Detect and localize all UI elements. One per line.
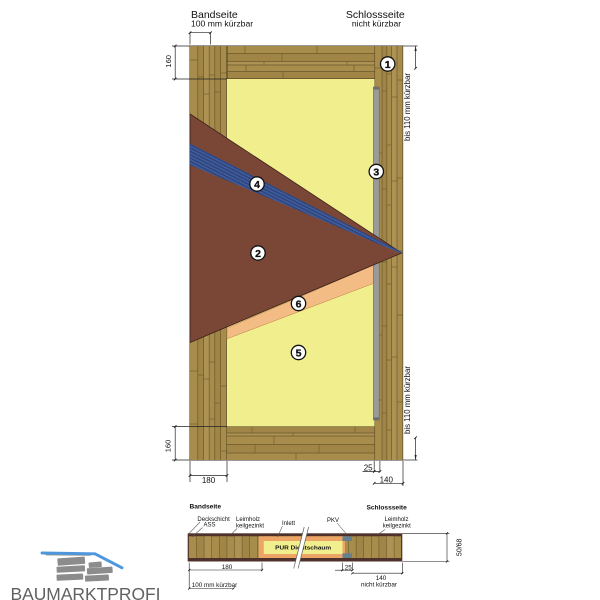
svg-text:BAUMARKTPROFI: BAUMARKTPROFI [11,584,161,600]
svg-text:4: 4 [254,179,260,191]
svg-text:1: 1 [385,59,391,71]
svg-text:100 mm kürzbar: 100 mm kürzbar [192,582,238,589]
svg-text:bis 110 mm kürzbar: bis 110 mm kürzbar [403,366,412,434]
svg-text:25: 25 [345,564,353,571]
svg-text:2: 2 [255,248,261,260]
svg-text:Schlossseite: Schlossseite [366,505,407,512]
svg-text:6: 6 [296,298,302,310]
svg-text:keilgezinkt: keilgezinkt [236,523,264,529]
svg-text:180: 180 [202,476,216,485]
svg-text:25: 25 [364,463,373,472]
svg-text:nicht kürzbar: nicht kürzbar [352,19,401,29]
svg-text:180: 180 [222,564,233,571]
svg-text:160: 160 [163,440,172,453]
svg-text:Inlett: Inlett [282,521,295,527]
svg-text:Leimholz: Leimholz [236,517,260,523]
svg-text:140: 140 [380,475,394,484]
svg-text:Leimholz: Leimholz [384,517,408,523]
svg-text:Bandseite: Bandseite [190,503,222,510]
svg-text:160: 160 [164,55,173,68]
svg-text:keilgezinkt: keilgezinkt [383,523,411,529]
svg-text:ASS: ASS [203,522,215,528]
svg-text:100 mm kürzbar: 100 mm kürzbar [191,19,253,29]
svg-text:50/68: 50/68 [457,538,464,556]
svg-text:bis 110 mm kürzbar: bis 110 mm kürzbar [403,73,412,141]
svg-text:5: 5 [296,347,302,359]
svg-text:nicht kürzbar: nicht kürzbar [361,582,397,589]
svg-text:3: 3 [373,166,379,178]
